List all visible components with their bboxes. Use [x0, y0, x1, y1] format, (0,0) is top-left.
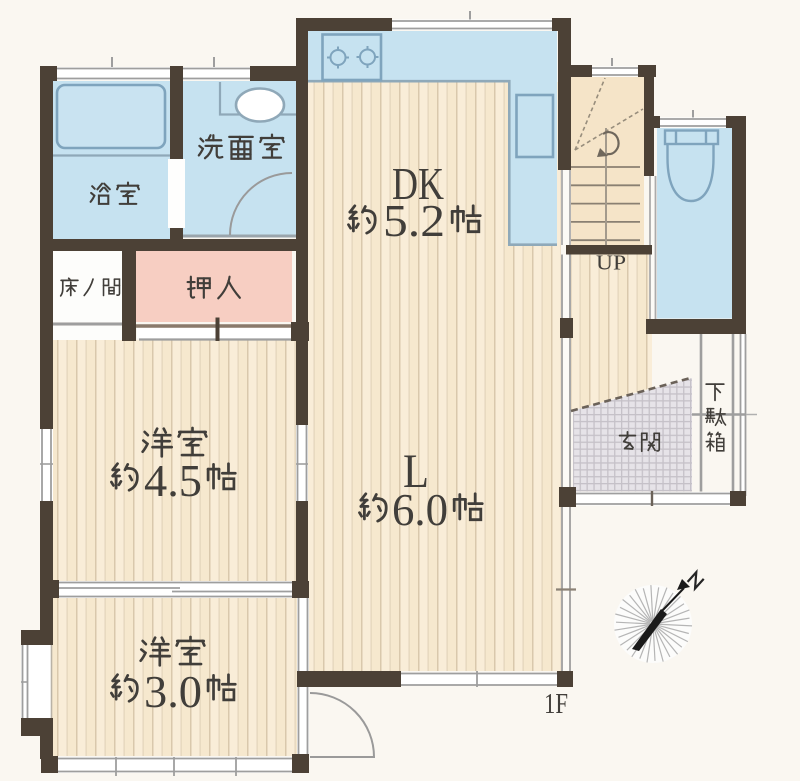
svg-text:4.5: 4.5 — [144, 456, 202, 506]
svg-text:5.2: 5.2 — [383, 195, 445, 246]
svg-text:UP: UP — [596, 251, 626, 275]
svg-text:1F: 1F — [544, 689, 568, 720]
svg-text:6.0: 6.0 — [392, 484, 448, 535]
svg-text:3.0: 3.0 — [144, 667, 202, 717]
